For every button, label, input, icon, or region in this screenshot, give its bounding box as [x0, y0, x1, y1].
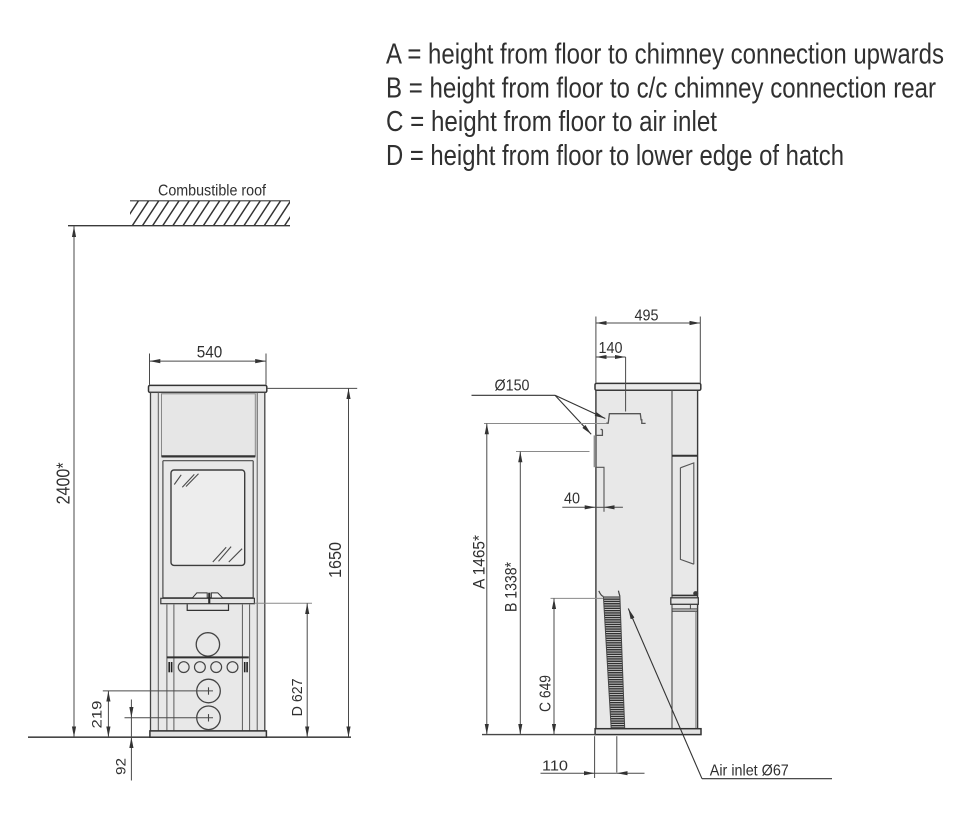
svg-text:A 1465*: A 1465* [469, 535, 488, 589]
svg-text:92: 92 [114, 758, 129, 775]
svg-text:C 649: C 649 [538, 675, 555, 712]
svg-text:40: 40 [564, 491, 580, 508]
svg-text:495: 495 [635, 307, 659, 324]
svg-text:110: 110 [542, 759, 568, 775]
svg-text:B = height from floor to c/c: B = height from floor to c/c chimney con… [386, 73, 936, 105]
svg-text:Air inlet Ø67: Air inlet Ø67 [710, 762, 789, 779]
svg-text:219: 219 [89, 701, 104, 729]
svg-text:540: 540 [197, 343, 223, 362]
svg-text:140: 140 [599, 340, 623, 357]
svg-text:D 627: D 627 [290, 678, 306, 716]
svg-text:Ø150: Ø150 [495, 378, 530, 395]
svg-text:B 1338*: B 1338* [502, 562, 521, 612]
svg-text:2400*: 2400* [53, 462, 73, 504]
svg-text:1650: 1650 [325, 542, 345, 578]
svg-text:A = height from floor to chim: A = height from floor to chimney connect… [386, 39, 944, 71]
svg-text:C = height from floor to air: C = height from floor to air inlet [386, 106, 717, 138]
svg-text:D = height from floor to lowe: D = height from floor to lower edge of h… [386, 140, 844, 172]
svg-text:Combustible roof: Combustible roof [158, 182, 267, 199]
